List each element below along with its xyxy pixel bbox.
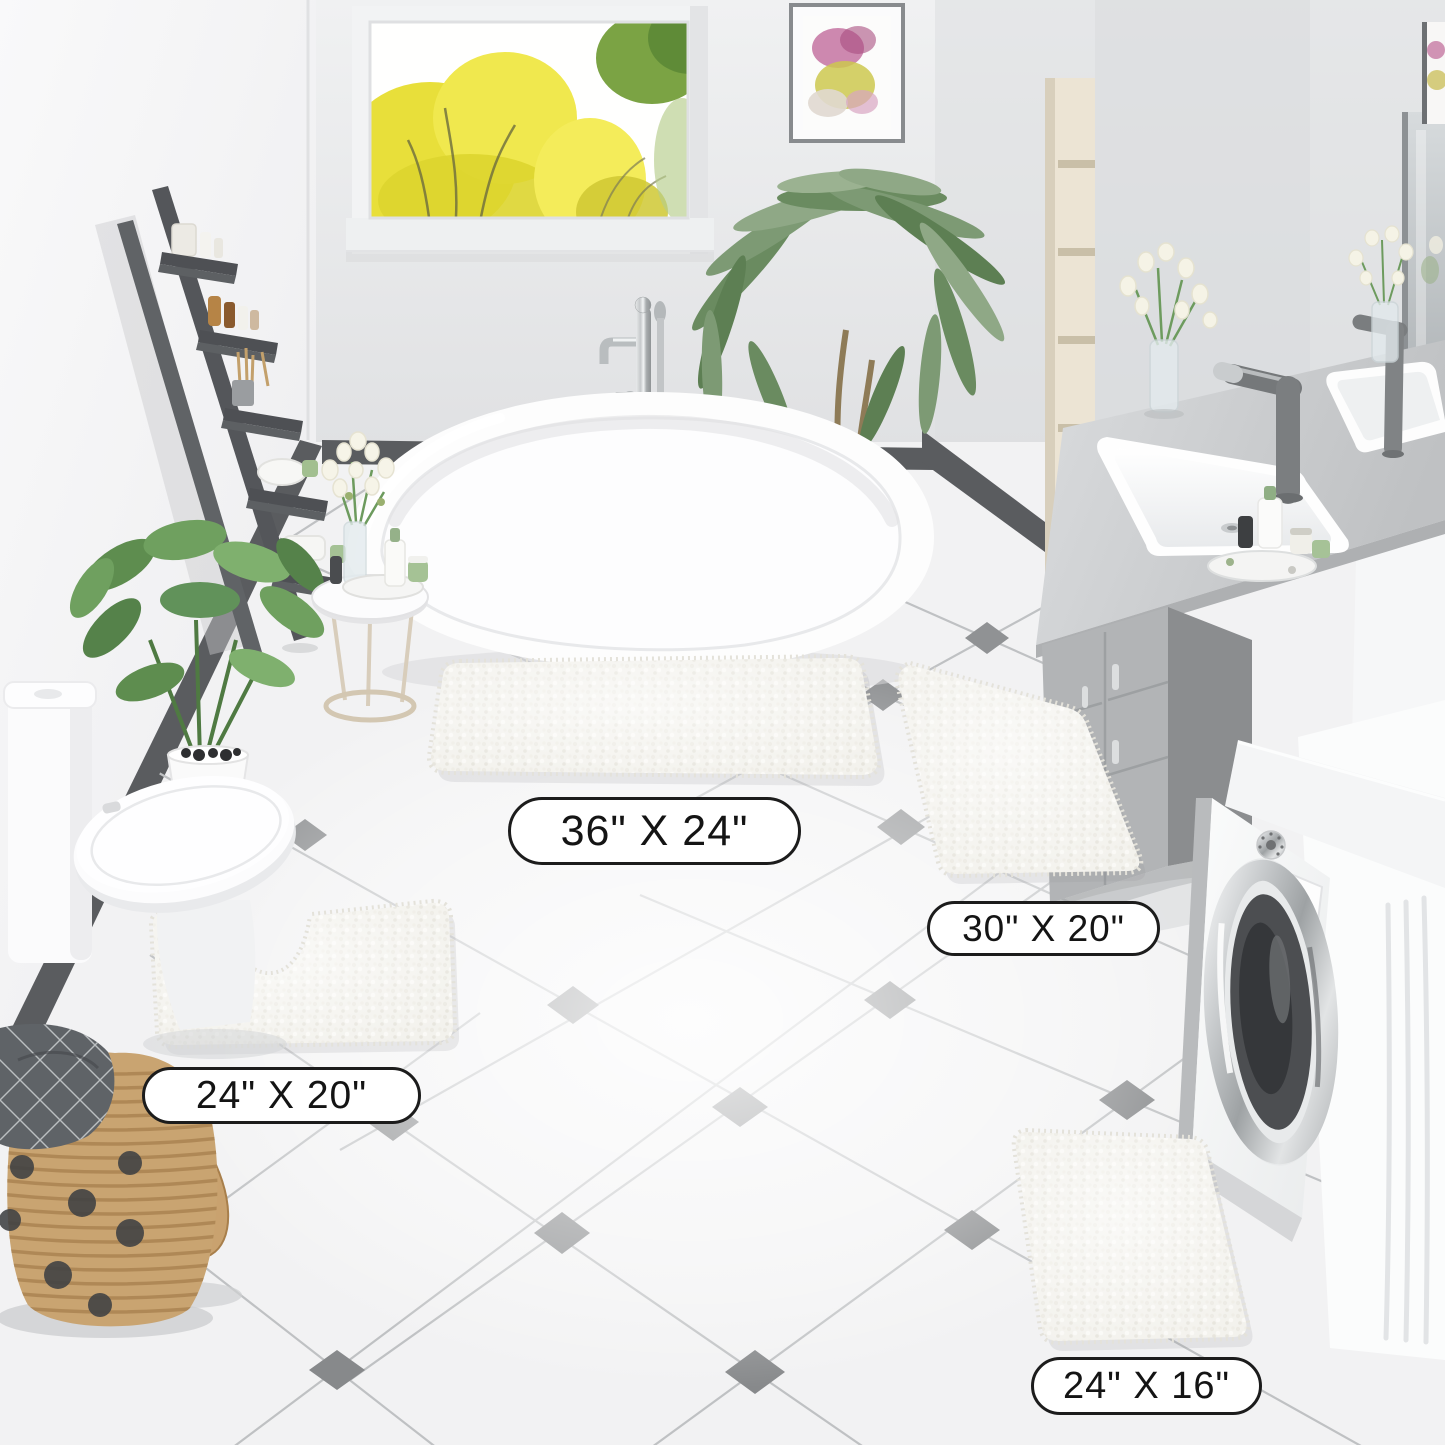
window (342, 2, 732, 262)
size-label-30x20: 30" X 20" (927, 901, 1160, 956)
vanity-wall-shade (1095, 0, 1310, 436)
size-label-36x24: 36" X 24" (508, 797, 801, 865)
corner-art-frame (1422, 22, 1445, 124)
scene-artwork (0, 0, 1445, 1445)
size-label-24x20: 24" X 20" (142, 1067, 421, 1124)
size-label-24x16: 24" X 16" (1031, 1357, 1262, 1415)
bath-mat-36x24 (431, 658, 884, 786)
wall-art-frame (791, 5, 903, 141)
bathroom-product-scene: 36" X 24" 30" X 20" 24" X 20" 24" X 16" (0, 0, 1445, 1445)
washer-dial (1257, 831, 1285, 859)
window-sill (346, 218, 714, 252)
